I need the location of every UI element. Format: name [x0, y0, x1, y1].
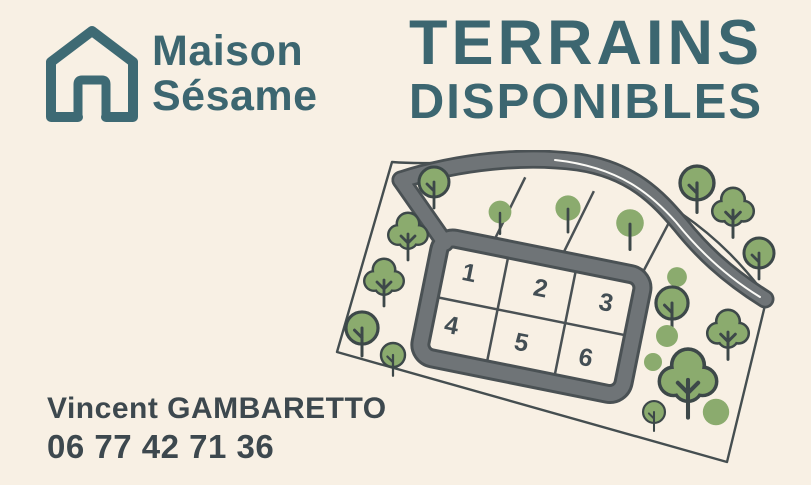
headline-line2: DISPONIBLES: [374, 77, 798, 127]
bush-icon: [644, 353, 662, 371]
contact-info: Vincent GAMBARETTO 06 77 42 71 36: [47, 393, 387, 464]
headline-line1: TERRAINS: [374, 10, 798, 76]
bush-icon: [656, 325, 678, 347]
site-map-illustration: 1 2 3 4 5 6: [320, 150, 811, 480]
agent-name: Vincent GAMBARETTO: [47, 393, 387, 425]
tree-icon: [680, 166, 714, 212]
headline: TERRAINS DISPONIBLES: [374, 10, 798, 127]
brand-logo: Maison Sésame: [40, 21, 390, 131]
brand-name-line2: Sésame: [152, 74, 318, 119]
brand-name-line1: Maison: [152, 29, 318, 74]
site-map: 1 2 3 4 5 6: [320, 150, 811, 480]
brand-name: Maison Sésame: [152, 29, 318, 119]
bush-icon: [667, 267, 687, 287]
agent-phone: 06 77 42 71 36: [47, 430, 387, 464]
bush-icon: [703, 399, 729, 425]
boundary-outline: [337, 161, 767, 462]
page: { "brand": { "line1": "Maison", "line2":…: [0, 0, 811, 480]
house-icon: [40, 21, 144, 123]
tree-icon: [713, 188, 754, 237]
